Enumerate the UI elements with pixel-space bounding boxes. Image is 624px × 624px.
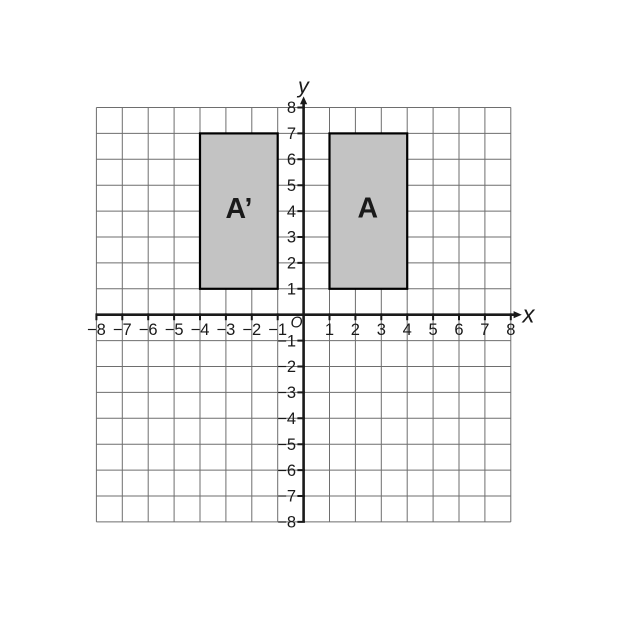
svg-text:−3: −3 xyxy=(216,321,235,339)
svg-text:y: y xyxy=(296,74,310,98)
svg-text:A: A xyxy=(358,193,379,225)
svg-text:−4: −4 xyxy=(277,410,296,428)
svg-text:8: 8 xyxy=(506,321,515,339)
svg-text:−2: −2 xyxy=(242,321,261,339)
svg-text:7: 7 xyxy=(480,321,489,339)
svg-text:−6: −6 xyxy=(139,321,158,339)
svg-text:O: O xyxy=(291,315,303,332)
svg-text:5: 5 xyxy=(287,177,296,195)
svg-text:−8: −8 xyxy=(277,514,296,532)
svg-text:2: 2 xyxy=(287,255,296,273)
svg-text:A’: A’ xyxy=(226,193,253,225)
svg-text:−8: −8 xyxy=(87,321,106,339)
svg-text:−1: −1 xyxy=(277,332,296,350)
svg-text:−5: −5 xyxy=(277,436,296,454)
svg-text:3: 3 xyxy=(287,229,296,247)
svg-text:1: 1 xyxy=(325,321,334,339)
svg-text:4: 4 xyxy=(287,203,296,221)
svg-text:4: 4 xyxy=(403,321,412,339)
svg-text:−3: −3 xyxy=(277,384,296,402)
svg-text:2: 2 xyxy=(351,321,360,339)
svg-text:6: 6 xyxy=(454,321,463,339)
svg-text:−5: −5 xyxy=(165,321,184,339)
svg-text:3: 3 xyxy=(377,321,386,339)
svg-text:−7: −7 xyxy=(277,488,296,506)
svg-text:7: 7 xyxy=(287,125,296,143)
svg-text:6: 6 xyxy=(287,151,296,169)
svg-text:−7: −7 xyxy=(113,321,132,339)
svg-text:8: 8 xyxy=(287,99,296,117)
svg-text:1: 1 xyxy=(287,281,296,299)
svg-text:5: 5 xyxy=(429,321,438,339)
svg-text:−2: −2 xyxy=(277,358,296,376)
svg-text:−4: −4 xyxy=(191,321,210,339)
svg-text:x: x xyxy=(522,301,536,328)
svg-text:−6: −6 xyxy=(277,462,296,480)
